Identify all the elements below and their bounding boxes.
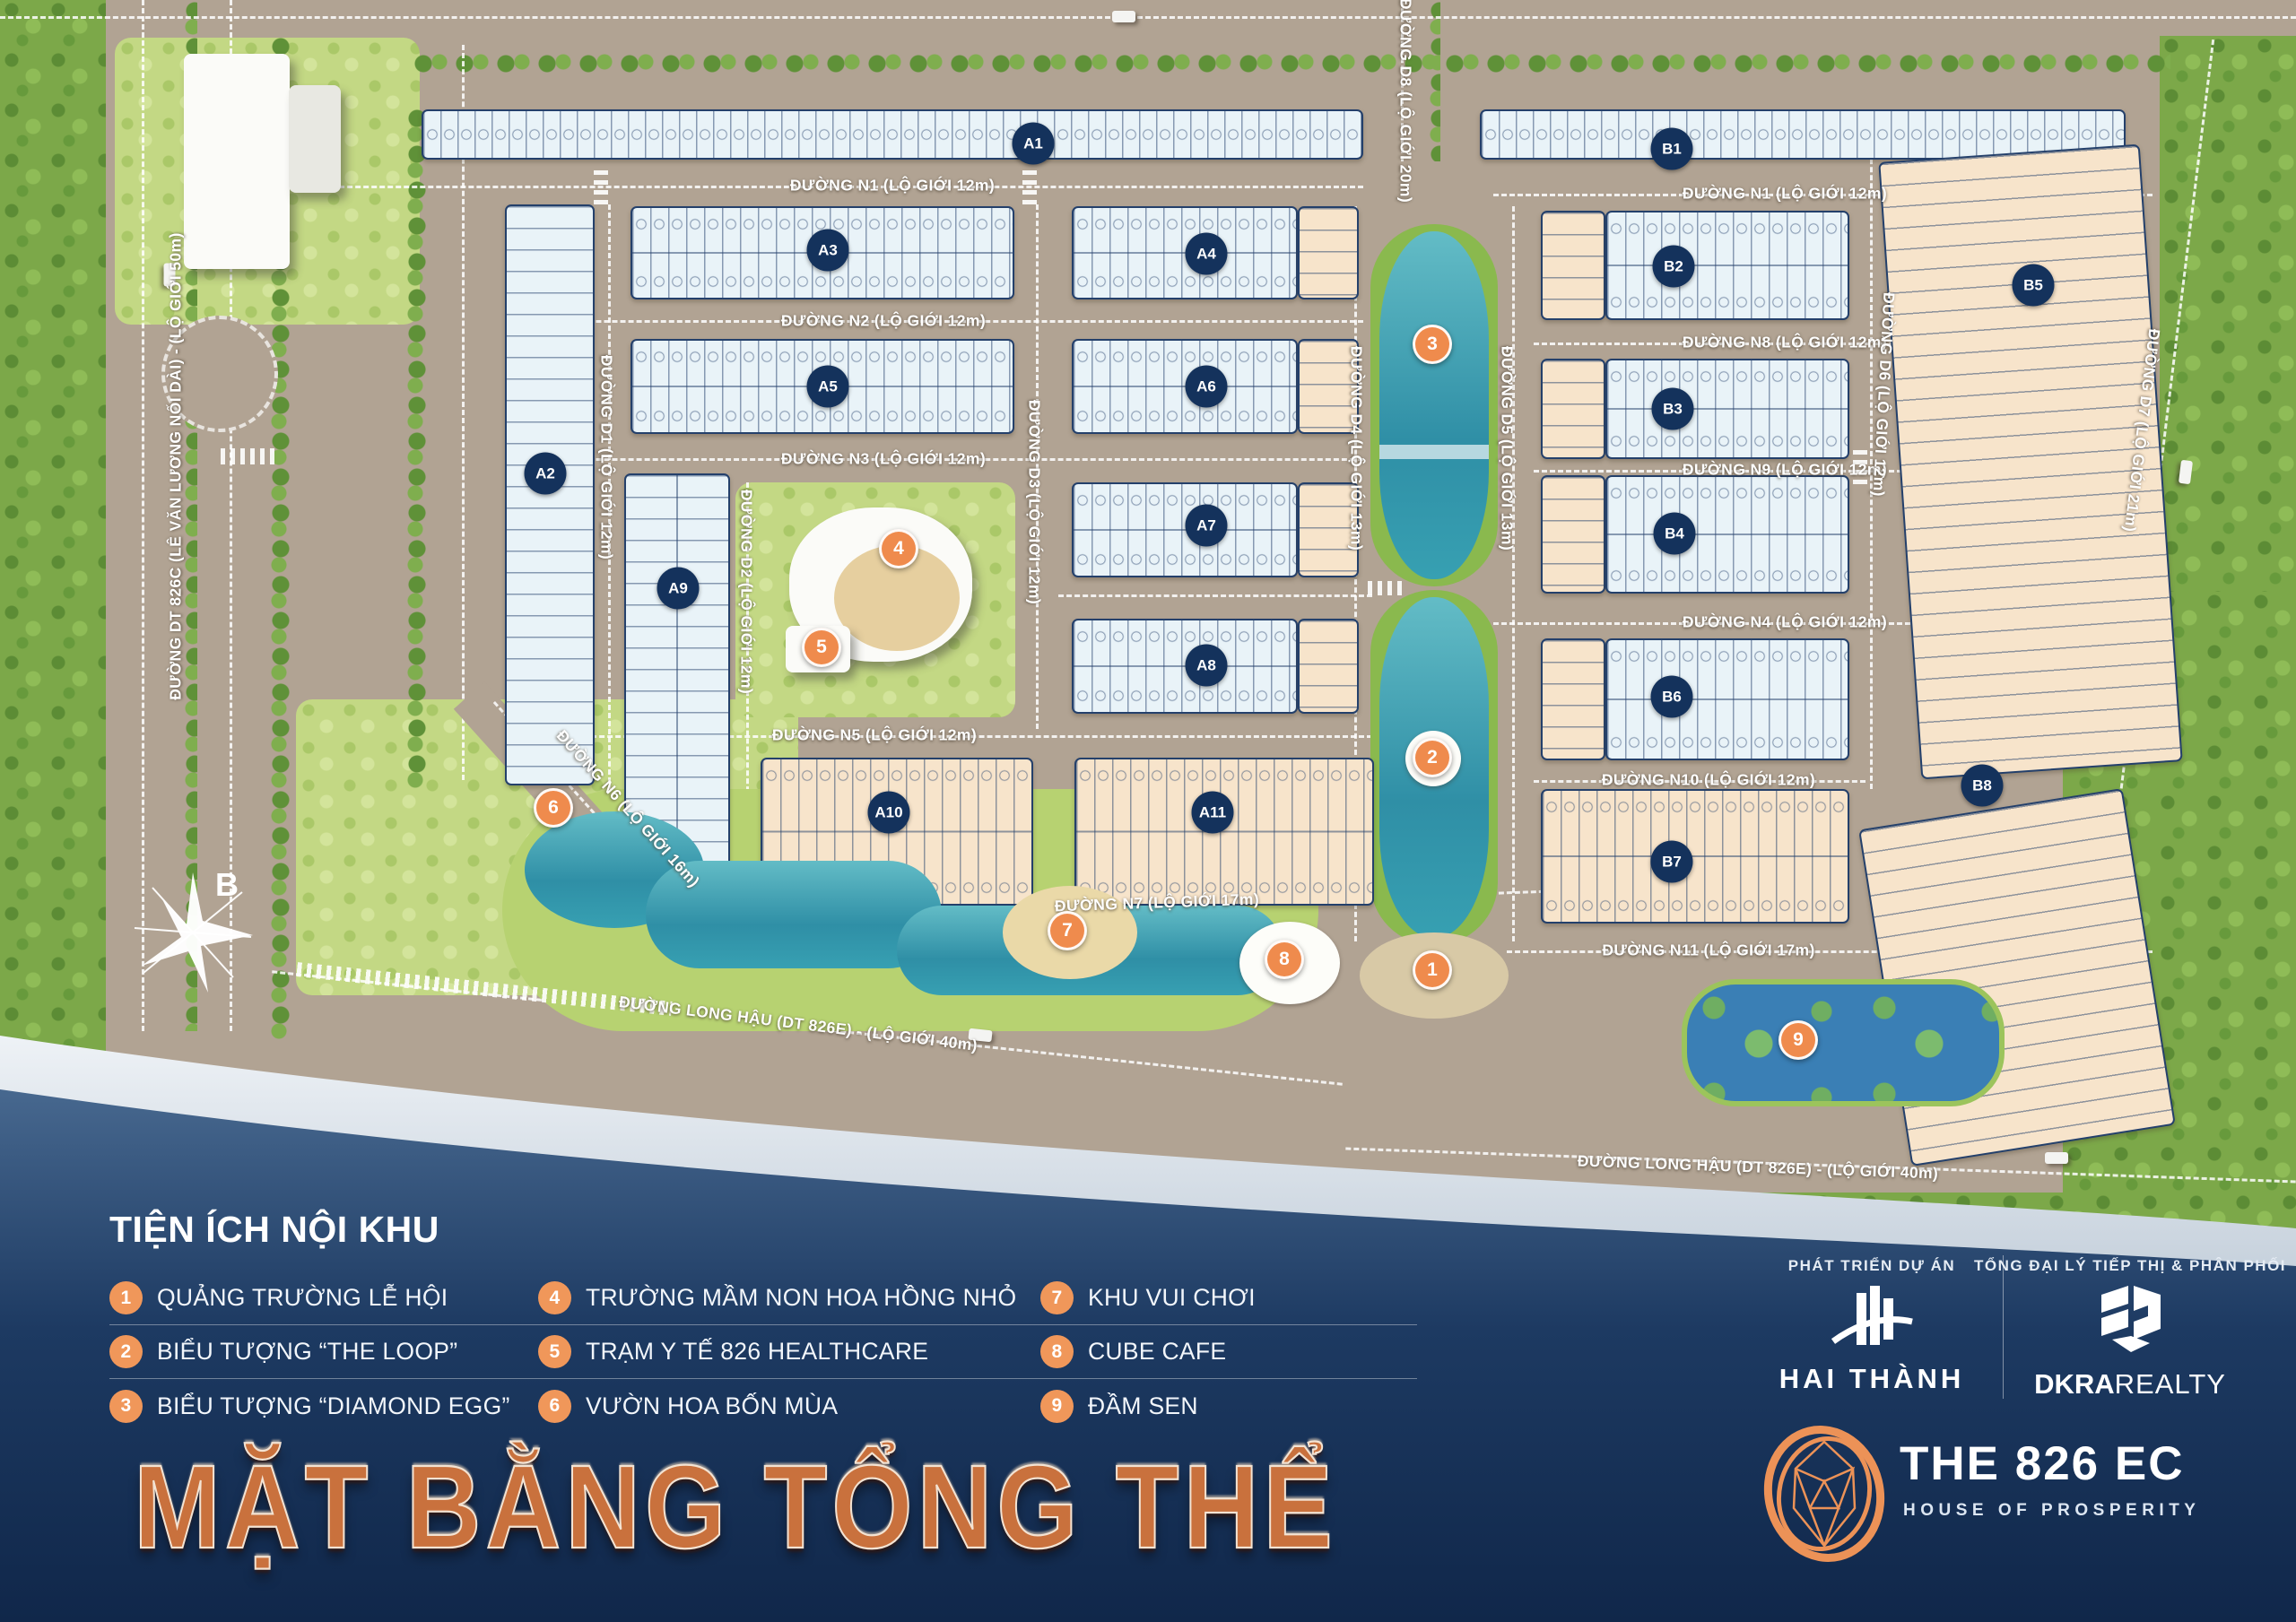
block-badge-A1: A1 bbox=[1013, 123, 1055, 165]
school-wing bbox=[289, 85, 341, 193]
legend-item-label: ĐẦM SEN bbox=[1088, 1392, 1198, 1420]
street-label-n8: ĐƯỜNG N8 (LỘ GIỚI 12m) bbox=[1683, 334, 1887, 352]
compass-letter: B bbox=[215, 866, 239, 903]
legend-item-4: 4TRƯỜNG MẦM NON HOA HỒNG NHỎ bbox=[538, 1271, 1040, 1325]
amenity-marker-6: 6 bbox=[534, 788, 573, 828]
legend-number-badge: 2 bbox=[109, 1335, 143, 1368]
amenity-marker-2: 2 bbox=[1413, 738, 1452, 777]
school-building bbox=[184, 54, 290, 269]
legend-item-label: BIỂU TƯỢNG “THE LOOP” bbox=[157, 1338, 457, 1366]
block-badge-A2: A2 bbox=[525, 453, 567, 495]
legend-item-label: BIỂU TƯỢNG “DIAMOND EGG” bbox=[157, 1392, 510, 1420]
block-badge-B5: B5 bbox=[2013, 265, 2055, 307]
legend-item-label: TRẠM Y TẾ 826 HEALTHCARE bbox=[586, 1338, 928, 1366]
block-badge-A4: A4 bbox=[1186, 233, 1228, 275]
tree-row-top bbox=[413, 52, 2170, 104]
legend-title: TIỆN ÍCH NỘI KHU bbox=[109, 1209, 439, 1251]
legend-number-badge: 8 bbox=[1040, 1335, 1074, 1368]
crosswalk bbox=[1022, 169, 1037, 204]
brand-divider bbox=[2003, 1255, 2004, 1399]
street-label-n10: ĐƯỜNG N10 (LỘ GIỚI 12m) bbox=[1602, 771, 1815, 790]
legend-grid: 1QUẢNG TRƯỜNG LỄ HỘI2BIỂU TƯỢNG “THE LOO… bbox=[109, 1271, 1417, 1433]
developer-name: HAI THÀNH bbox=[1779, 1363, 1965, 1395]
street-label-n2: ĐƯỜNG N2 (LỘ GIỚI 12m) bbox=[781, 312, 986, 331]
block-badge-A9: A9 bbox=[657, 568, 700, 610]
block-shape-B3 bbox=[1605, 359, 1849, 459]
legend-number-badge: 7 bbox=[1040, 1281, 1074, 1314]
legend-item-label: CUBE CAFE bbox=[1088, 1338, 1226, 1366]
block-shape-B4 bbox=[1605, 475, 1849, 594]
legend-number-badge: 5 bbox=[538, 1335, 571, 1368]
page-title: MẶT BẰNG TỔNG THỂ bbox=[126, 1438, 1345, 1575]
street-label-n3: ĐƯỜNG N3 (LỘ GIỚI 12m) bbox=[781, 450, 986, 469]
block-badge-A7: A7 bbox=[1186, 505, 1228, 547]
block-shape-A7 bbox=[1072, 482, 1298, 577]
dkra-logo-icon bbox=[2096, 1282, 2166, 1357]
block-badge-A6: A6 bbox=[1186, 366, 1228, 408]
forest-left bbox=[0, 0, 106, 1058]
amenity-marker-4: 4 bbox=[879, 529, 918, 568]
crosswalk bbox=[594, 169, 608, 204]
street-label-dt826c: ĐƯỜNG DT 826C (LÊ VĂN LƯƠNG NỐI DÀI) - (… bbox=[167, 232, 186, 699]
block-badge-B1: B1 bbox=[1651, 128, 1693, 170]
block-shape-B3-left bbox=[1541, 359, 1605, 459]
block-badge-B3: B3 bbox=[1652, 388, 1694, 430]
tree-col-service-road bbox=[405, 108, 429, 789]
block-shape-B4-left bbox=[1541, 475, 1605, 594]
street-label-d4: ĐƯỜNG D4 (LỘ GIỚI 13m) bbox=[1347, 346, 1366, 551]
legend-item-1: 1QUẢNG TRƯỜNG LỄ HỘI bbox=[109, 1271, 538, 1325]
street-label-d3: ĐƯỜNG D3 (LỘ GIỚI 12m) bbox=[1025, 400, 1044, 604]
block-shape-A1 bbox=[422, 109, 1363, 160]
car bbox=[1112, 11, 1135, 22]
median-d8 bbox=[1428, 0, 1440, 161]
legend-item-9: 9ĐẦM SEN bbox=[1040, 1379, 1417, 1433]
amenity-marker-7: 7 bbox=[1048, 911, 1087, 950]
agency-name-bold: DKRA bbox=[2034, 1368, 2115, 1400]
project-tagline: HOUSE OF PROSPERITY bbox=[1903, 1501, 2200, 1521]
the-826-ec-emblem-icon bbox=[1754, 1422, 1894, 1566]
street-label-n9: ĐƯỜNG N9 (LỘ GIỚI 12m) bbox=[1683, 461, 1887, 480]
legend-item-6: 6VƯỜN HOA BỐN MÙA bbox=[538, 1379, 1040, 1433]
agency-name-rest: REALTY bbox=[2115, 1368, 2226, 1400]
block-shape-B7 bbox=[1541, 789, 1849, 924]
legend-number-badge: 9 bbox=[1040, 1390, 1074, 1423]
block-shape-A8-end bbox=[1298, 619, 1359, 714]
legend-item-2: 2BIỂU TƯỢNG “THE LOOP” bbox=[109, 1325, 538, 1379]
street-label-d1: ĐƯỜNG D1 (LỘ GIỚI 12m) bbox=[597, 355, 616, 559]
legend-item-8: 8CUBE CAFE bbox=[1040, 1325, 1417, 1379]
street-label-n1-right: ĐƯỜNG N1 (LỘ GIỚI 12m) bbox=[1683, 185, 1887, 204]
legend-number-badge: 1 bbox=[109, 1281, 143, 1314]
block-badge-B4: B4 bbox=[1654, 513, 1696, 555]
block-badge-B2: B2 bbox=[1653, 246, 1695, 288]
block-shape-A11 bbox=[1074, 758, 1374, 906]
legend-number-badge: 4 bbox=[538, 1281, 571, 1314]
legend-item-3: 3BIỂU TƯỢNG “DIAMOND EGG” bbox=[109, 1379, 538, 1433]
top-road-centerline bbox=[0, 16, 2296, 19]
masterplan-screenshot: B ĐƯỜNG N1 (LỘ GIỚI 12m)ĐƯỜNG N1 (LỘ GIỚ… bbox=[0, 0, 2296, 1622]
street-label-n1-left: ĐƯỜNG N1 (LỘ GIỚI 12m) bbox=[790, 177, 995, 195]
developer-caption: PHÁT TRIỂN DỰ ÁN bbox=[1788, 1257, 1955, 1275]
legend-number-badge: 3 bbox=[109, 1390, 143, 1423]
hai-thanh-logo-icon bbox=[1831, 1286, 1914, 1356]
block-shape-B6-left bbox=[1541, 638, 1605, 760]
street-label-d8: ĐƯỜNG D8 (LỘ GIỚI 20m) bbox=[1396, 0, 1415, 203]
street-label-d5: ĐƯỜNG D5 (LỘ GIỚI 13m) bbox=[1498, 346, 1517, 551]
block-shape-B2 bbox=[1605, 211, 1849, 320]
legend-item-7: 7KHU VUI CHƠI bbox=[1040, 1271, 1417, 1325]
block-badge-B6: B6 bbox=[1651, 676, 1693, 718]
agency-caption: TỔNG ĐẠI LÝ TIẾP THỊ & PHÂN PHỐI bbox=[1974, 1257, 2286, 1275]
block-badge-B8: B8 bbox=[1961, 765, 2004, 807]
amenity-marker-5: 5 bbox=[802, 628, 841, 667]
crosswalk bbox=[221, 448, 274, 464]
legend-item-label: VƯỜN HOA BỐN MÙA bbox=[586, 1392, 838, 1420]
mid-road-centerline bbox=[1058, 594, 1372, 597]
crosswalk bbox=[1368, 581, 1407, 595]
street-label-d2: ĐƯỜNG D2 (LỘ GIỚI 12m) bbox=[737, 490, 756, 694]
block-shape-B6 bbox=[1605, 638, 1849, 760]
legend-item-label: QUẢNG TRƯỜNG LỄ HỘI bbox=[157, 1284, 448, 1312]
agency-name: DKRAREALTY bbox=[2034, 1368, 2226, 1401]
block-badge-A5: A5 bbox=[807, 366, 849, 408]
legend-item-label: TRƯỜNG MẦM NON HOA HỒNG NHỎ bbox=[586, 1284, 1016, 1312]
street-label-n4: ĐƯỜNG N4 (LỘ GIỚI 12m) bbox=[1683, 613, 1887, 632]
project-name: THE 826 EC bbox=[1900, 1436, 2185, 1491]
block-badge-A8: A8 bbox=[1186, 645, 1228, 687]
block-badge-A3: A3 bbox=[807, 230, 849, 272]
canal-upper bbox=[1379, 231, 1489, 579]
block-badge-B7: B7 bbox=[1651, 841, 1693, 883]
d5-centerline bbox=[1512, 206, 1515, 941]
block-badge-A10: A10 bbox=[868, 792, 910, 834]
canal-bridge bbox=[1379, 445, 1489, 459]
block-shape-B2-left bbox=[1541, 211, 1605, 320]
legend-number-badge: 6 bbox=[538, 1390, 571, 1423]
block-badge-A11: A11 bbox=[1192, 792, 1234, 834]
block-shape-A2 bbox=[505, 204, 595, 785]
street-label-n5: ĐƯỜNG N5 (LỘ GIỚI 12m) bbox=[772, 726, 977, 745]
street-label-n11: ĐƯỜNG N11 (LỘ GIỚI 17m) bbox=[1602, 941, 1814, 960]
legend-item-label: KHU VUI CHƠI bbox=[1088, 1284, 1256, 1312]
amenity-marker-3: 3 bbox=[1413, 325, 1452, 364]
block-shape-A4-end bbox=[1298, 206, 1359, 299]
legend-item-5: 5TRẠM Y TẾ 826 HEALTHCARE bbox=[538, 1325, 1040, 1379]
